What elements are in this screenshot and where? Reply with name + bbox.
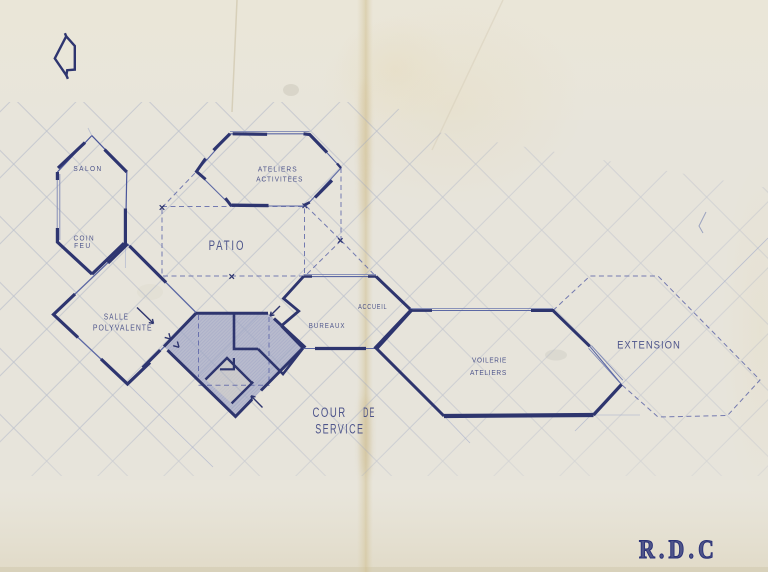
svg-text:SALON: SALON bbox=[73, 164, 102, 173]
svg-text:VOILERIE: VOILERIE bbox=[472, 356, 507, 365]
svg-text:SERVICE: SERVICE bbox=[315, 421, 364, 437]
svg-text:ATELIERS: ATELIERS bbox=[258, 164, 298, 173]
svg-text:R.D.C: R.D.C bbox=[639, 535, 718, 564]
svg-text:COUR: COUR bbox=[313, 405, 347, 421]
svg-text:PATIO: PATIO bbox=[209, 238, 246, 253]
svg-text:ACCUEIL: ACCUEIL bbox=[358, 302, 387, 311]
svg-text:POLYVALENTE: POLYVALENTE bbox=[93, 323, 153, 332]
svg-text:FEU: FEU bbox=[74, 241, 91, 250]
svg-text:DE: DE bbox=[363, 405, 375, 421]
svg-text:SALLE: SALLE bbox=[104, 312, 129, 321]
svg-text:EXTENSION: EXTENSION bbox=[617, 339, 681, 351]
svg-text:BUREAUX: BUREAUX bbox=[309, 321, 346, 330]
svg-text:ATELIERS: ATELIERS bbox=[470, 368, 507, 377]
svg-text:ACTIVITEES: ACTIVITEES bbox=[256, 175, 303, 184]
